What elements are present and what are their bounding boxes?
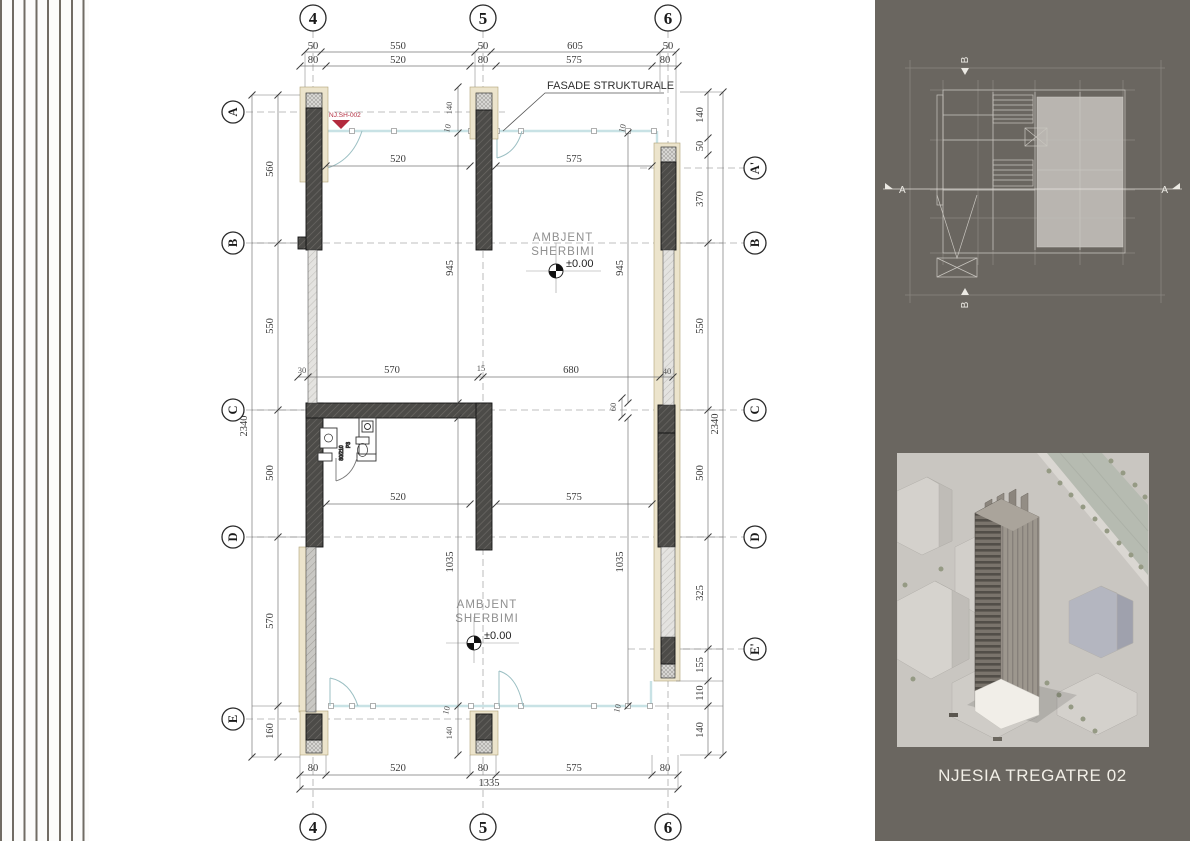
dim-bot-0: 80 — [308, 763, 319, 774]
dim-left-3: 570 — [265, 613, 276, 629]
dim-small-10-b: 10 — [616, 123, 628, 134]
room-upper-line1: AMBJENT — [533, 232, 594, 244]
floor-plan-svg: P3 80/210 NJ.SH-002 FASADE STRUKTURALE A… — [0, 0, 875, 841]
side-panel: A A B B — [875, 0, 1190, 841]
dim-glass-upper-right: 945 — [615, 260, 626, 276]
grid-bubble-rowB-right: B — [748, 239, 762, 247]
dim-right-5: 325 — [695, 585, 706, 601]
dim-right-total: 2340 — [710, 414, 721, 435]
dim-bot-4: 80 — [660, 763, 671, 774]
room-lower-line2: SHERBIMI — [455, 613, 519, 625]
dim-mid-0: 30 — [298, 365, 307, 375]
unit-marker: NJ.SH-002 — [329, 112, 361, 129]
grid-bubble-col6-bottom: 6 — [664, 818, 673, 837]
dim-small-10-a: 10 — [441, 123, 453, 134]
dim-right-3: 550 — [695, 318, 706, 334]
keyplan-section-label-b-bottom: B — [960, 301, 971, 308]
grid-bubble-rowA: A — [226, 107, 240, 116]
grid-bubble-rowE: E — [226, 715, 240, 723]
render-image — [897, 453, 1149, 747]
dim-innertop-1: 575 — [566, 154, 582, 165]
dim-small-10-d: 10 — [611, 703, 623, 714]
dim-total-width: 1335 — [479, 778, 500, 789]
grid-bubble-col4-top: 4 — [309, 9, 318, 28]
dim-top2-4: 80 — [660, 55, 671, 66]
dim-bot-3: 575 — [566, 763, 582, 774]
keyplan-section-label-b-top: B — [960, 56, 971, 63]
dim-glass-upper-left: 945 — [445, 260, 456, 276]
dim-top1-2: 50 — [478, 41, 489, 52]
dim-right-6: 155 — [695, 657, 706, 673]
dim-mid-2: 15 — [477, 363, 486, 373]
dim-left-4: 160 — [265, 723, 276, 739]
dim-glass-lower-left: 1035 — [445, 552, 456, 573]
dim-bot-1: 520 — [390, 763, 406, 774]
grid-bubble-rowC-left: C — [226, 405, 240, 414]
room-upper-level: ±0.00 — [566, 258, 593, 270]
dim-glass-lower-right: 1035 — [615, 552, 626, 573]
dim-mid-1: 570 — [384, 365, 400, 376]
dim-top1-4: 50 — [663, 41, 674, 52]
dim-top1-0: 50 — [308, 41, 319, 52]
dim-right-1: 50 — [695, 141, 706, 152]
dim-small-60: 60 — [608, 403, 618, 412]
dim-right-8: 140 — [695, 722, 706, 738]
dim-bot-2: 80 — [478, 763, 489, 774]
dim-top1-3: 605 — [567, 41, 583, 52]
keyplan-section-label-a-left: A — [899, 185, 906, 196]
keyplan-svg: A A B B — [875, 0, 1190, 430]
walls — [298, 87, 680, 755]
wc-door-code: P3 — [346, 442, 352, 448]
dim-small-140-bottom: 140 — [444, 727, 454, 740]
room-upper: AMBJENT SHERBIMI ±0.00 — [526, 232, 601, 293]
room-lower-level: ±0.00 — [484, 630, 511, 642]
room-lower-line1: AMBJENT — [457, 599, 518, 611]
unit-marker-label: NJ.SH-002 — [329, 112, 361, 119]
facade-annotation: FASADE STRUKTURALE — [503, 80, 674, 131]
dim-small-140-top: 140 — [444, 102, 454, 115]
floor-plan-sheet: P3 80/210 NJ.SH-002 FASADE STRUKTURALE A… — [0, 0, 875, 841]
grid-bubble-rowD-right: D — [748, 532, 762, 541]
grid-bubble-rowD-left: D — [226, 532, 240, 541]
grid-bubble-rowA-right: A' — [748, 162, 762, 175]
dim-left-2: 500 — [265, 465, 276, 481]
dim-innertop-0: 520 — [390, 154, 406, 165]
room-upper-line2: SHERBIMI — [531, 246, 595, 258]
dim-left-0: 560 — [265, 161, 276, 177]
keyplan-section-marks-b: B B — [960, 56, 971, 308]
keyplan-section-label-a-right: A — [1161, 185, 1168, 196]
wc-door-size: 80/210 — [339, 445, 345, 461]
dim-right-4: 500 — [695, 465, 706, 481]
dim-right-2: 370 — [695, 191, 706, 207]
dim-top2-1: 520 — [390, 55, 406, 66]
dim-mid-4: 40 — [663, 366, 672, 376]
facade-annotation-label: FASADE STRUKTURALE — [547, 80, 674, 92]
unit-marker-triangle-icon — [332, 120, 350, 129]
panel-caption: NJESIA TREGATRE 02 — [875, 766, 1190, 786]
grid-bubble-rowE-right: E' — [748, 643, 762, 655]
grid-bubble-col6-top: 6 — [664, 9, 673, 28]
dim-mid-3: 680 — [563, 365, 579, 376]
grid-bubble-col4-bottom: 4 — [309, 818, 318, 837]
dim-left-1: 550 — [265, 318, 276, 334]
dim-top2-2: 80 — [478, 55, 489, 66]
grid-bubble-col5-bottom: 5 — [479, 818, 488, 837]
dim-innerlow-0: 520 — [390, 492, 406, 503]
wc-cell: P3 80/210 — [318, 418, 376, 481]
grid-bubble-rowC-right: C — [748, 405, 762, 414]
dim-right-7: 110 — [695, 685, 706, 700]
dim-top1-1: 550 — [390, 41, 406, 52]
dim-right-0: 140 — [695, 107, 706, 123]
dim-innerlow-1: 575 — [566, 492, 582, 503]
grid-bubble-rowB-left: B — [226, 239, 240, 247]
dim-top2-3: 575 — [566, 55, 582, 66]
dim-top2-0: 80 — [308, 55, 319, 66]
grid-bubble-col5-top: 5 — [479, 9, 488, 28]
room-lower: AMBJENT SHERBIMI ±0.00 — [446, 599, 519, 663]
keyplan-section-line: A A — [883, 183, 1182, 196]
